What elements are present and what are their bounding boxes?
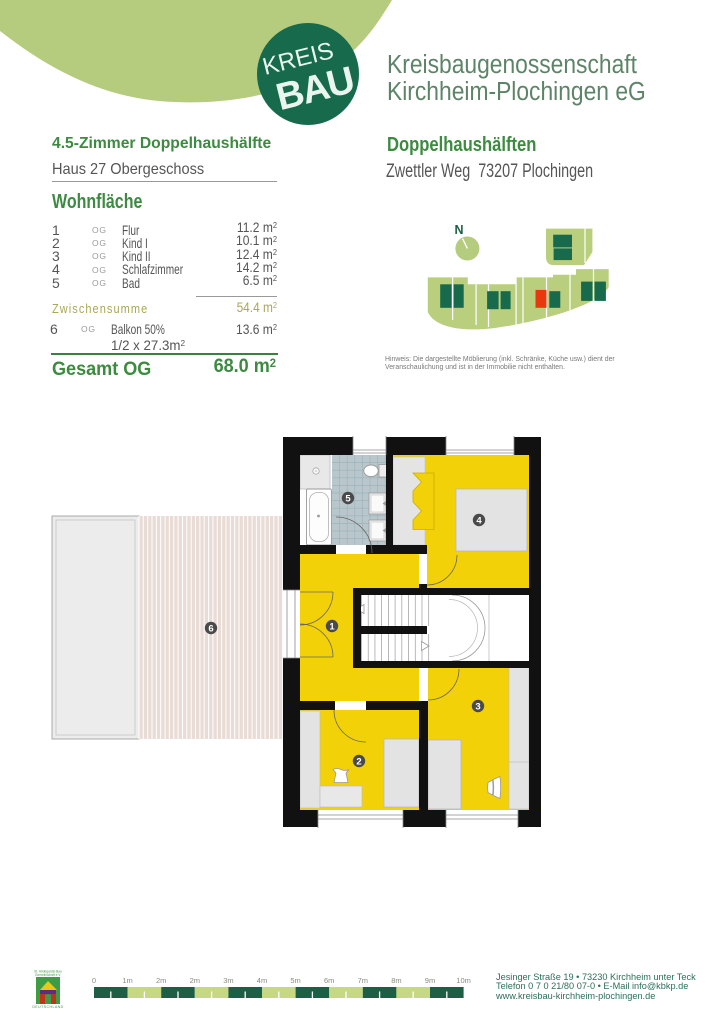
svg-text:5m: 5m — [290, 976, 300, 985]
svg-text:6: 6 — [208, 624, 213, 635]
svg-text:5: 5 — [345, 494, 351, 505]
svg-text:DEUTSCHLAND: DEUTSCHLAND — [32, 1005, 63, 1009]
svg-text:2: 2 — [356, 757, 361, 768]
svg-text:10m: 10m — [456, 976, 471, 985]
svg-text:9m: 9m — [425, 976, 435, 985]
svg-text:3m: 3m — [223, 976, 233, 985]
svg-text:Gemeinschaft e.V.: Gemeinschaft e.V. — [35, 973, 61, 977]
svg-text:2m: 2m — [190, 976, 200, 985]
svg-text:1: 1 — [329, 622, 335, 633]
svg-text:0: 0 — [92, 976, 96, 985]
svg-text:1m: 1m — [122, 976, 132, 985]
svg-text:4m: 4m — [257, 976, 267, 985]
svg-text:N: N — [455, 223, 464, 237]
svg-text:2m: 2m — [156, 976, 166, 985]
svg-text:3: 3 — [475, 702, 480, 713]
svg-text:7m: 7m — [358, 976, 368, 985]
svg-text:8m: 8m — [391, 976, 401, 985]
svg-text:6m: 6m — [324, 976, 334, 985]
svg-text:4: 4 — [476, 516, 482, 527]
